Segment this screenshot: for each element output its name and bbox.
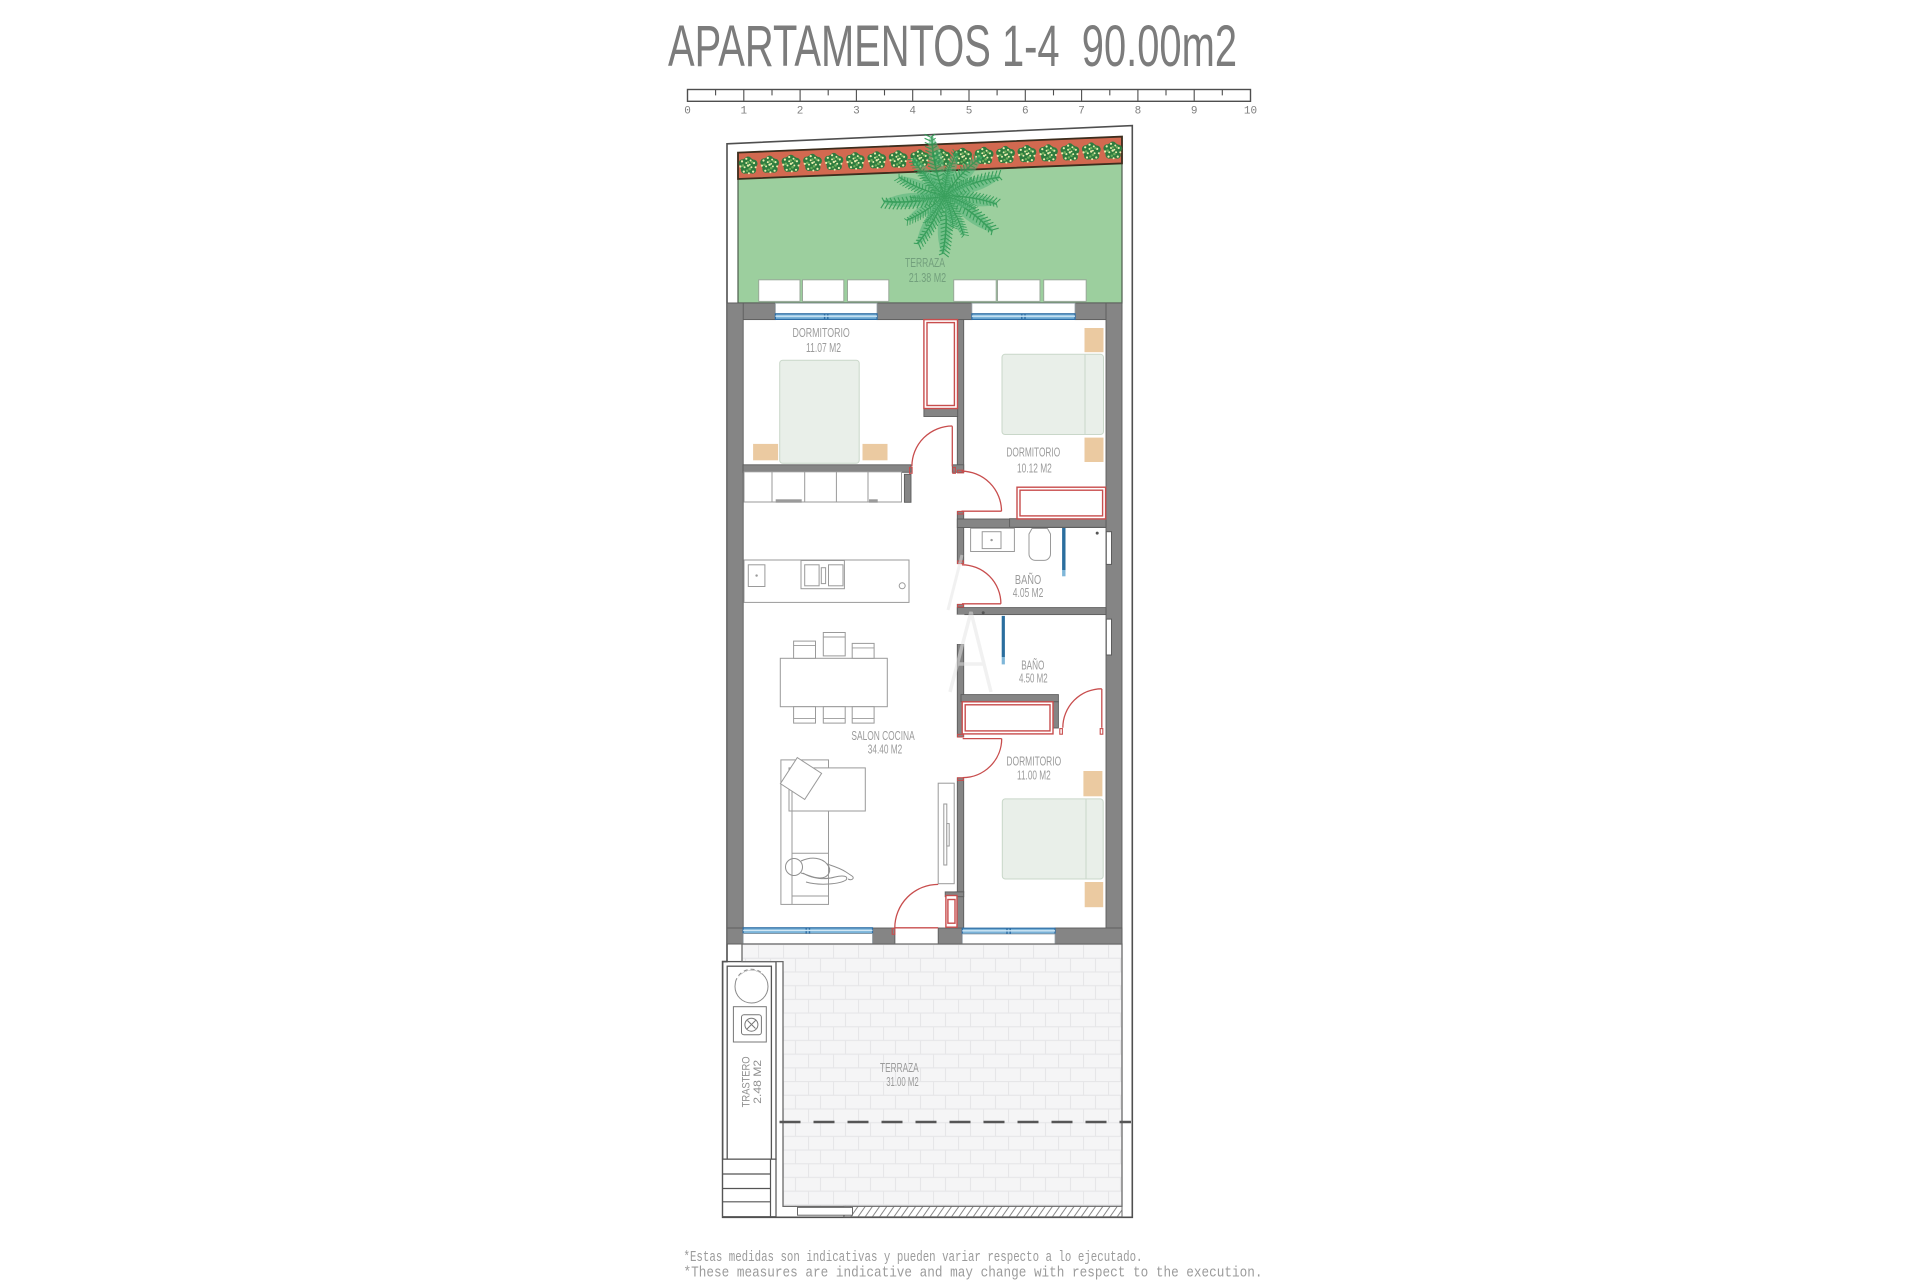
svg-text:21.38 M2: 21.38 M2	[909, 271, 947, 285]
svg-text:TERRAZA: TERRAZA	[880, 1061, 919, 1075]
svg-text:4.50 M2: 4.50 M2	[1019, 670, 1048, 685]
svg-text:5: 5	[966, 106, 973, 118]
svg-text:0: 0	[684, 106, 691, 118]
svg-text:TERRAZA: TERRAZA	[905, 256, 945, 270]
svg-text:DORMITORIO: DORMITORIO	[1006, 444, 1060, 459]
svg-text:10.12 M2: 10.12 M2	[1017, 460, 1052, 475]
svg-text:TRASTERO: TRASTERO	[740, 1056, 752, 1107]
svg-text:9: 9	[1191, 106, 1198, 118]
svg-text:7: 7	[1078, 106, 1085, 118]
svg-text:APARTAMENTOS 1-4 90.00m2: APARTAMENTOS 1-4 90.00m2	[668, 14, 1237, 79]
svg-text:3: 3	[853, 106, 860, 118]
svg-text:4: 4	[909, 106, 916, 118]
svg-text:34.40 M2: 34.40 M2	[868, 742, 902, 757]
svg-text:6: 6	[1022, 106, 1029, 118]
svg-text:DORMITORIO: DORMITORIO	[793, 325, 850, 340]
svg-text:11.00 M2: 11.00 M2	[1017, 767, 1051, 782]
svg-text:2.48 M2: 2.48 M2	[752, 1060, 764, 1104]
svg-text:31.00 M2: 31.00 M2	[886, 1075, 919, 1089]
svg-text:2: 2	[797, 106, 804, 118]
svg-text:10: 10	[1244, 106, 1257, 118]
svg-text:*Estas medidas son indicativas: *Estas medidas son indicativas y pueden …	[684, 1249, 1143, 1266]
svg-text:4.05 M2: 4.05 M2	[1013, 585, 1044, 600]
svg-text:8: 8	[1135, 106, 1142, 118]
svg-text:1: 1	[740, 106, 747, 118]
svg-text:11.07 M2: 11.07 M2	[806, 340, 841, 355]
svg-text:*These measures are indicative: *These measures are indicative and may c…	[684, 1265, 1263, 1280]
